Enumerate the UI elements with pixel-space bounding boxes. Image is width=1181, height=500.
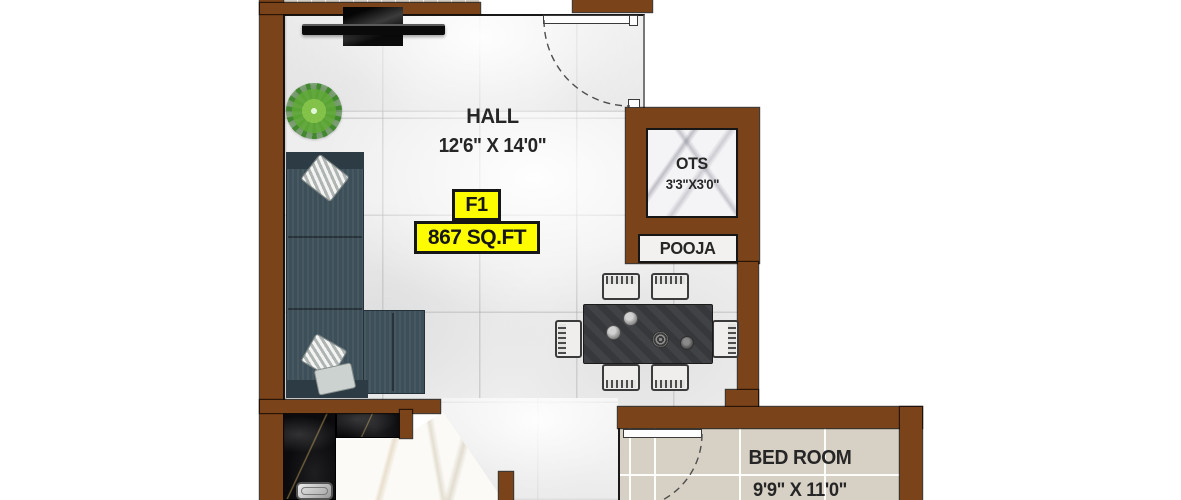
- bedroom-label: BED ROOM 9'9" X 11'0": [690, 446, 910, 500]
- main-door-stop: [628, 99, 640, 108]
- sofa-seam: [392, 313, 394, 391]
- pooja-room: POOJA: [638, 234, 738, 263]
- wall-mounted-tv: [302, 24, 445, 35]
- potted-plant: [286, 83, 342, 139]
- bedroom-door-panel: [623, 429, 702, 438]
- wall-top-stub: [573, 0, 652, 12]
- hall-label: HALL 12'6" X 14'0": [375, 104, 610, 158]
- table-centerpiece: [652, 331, 669, 348]
- main-door-panel: [543, 15, 631, 24]
- wall-kitchen-stub: [400, 410, 412, 438]
- pooja-room-name: POOJA: [660, 238, 716, 258]
- dining-chair: [602, 273, 640, 300]
- sofa-chaise: [363, 310, 425, 394]
- bedroom-room-dimensions: 9'9" X 11'0": [697, 479, 904, 500]
- dining-chair: [602, 364, 640, 391]
- hall-room-dimensions: 12'6" X 14'0": [382, 135, 603, 158]
- dining-chair: [712, 320, 739, 358]
- dining-table: [583, 304, 713, 364]
- wall-pillar: [499, 472, 513, 500]
- flat-number-badge: F1: [452, 189, 501, 221]
- ots-room-name: OTS: [676, 154, 708, 174]
- wall-bedroom-top: [618, 407, 922, 428]
- bedroom-room-name: BED ROOM: [697, 446, 904, 470]
- hall-room-name: HALL: [382, 104, 603, 129]
- sofa-seam: [288, 236, 362, 238]
- sofa-seam: [288, 308, 362, 310]
- wall-left: [260, 0, 283, 500]
- ots-room: OTS 3'3"X3'0": [646, 128, 738, 218]
- floor-plan-canvas: OTS 3'3"X3'0" POOJA HALL: [0, 0, 1181, 500]
- dining-chair: [555, 320, 582, 358]
- wall-hall-bottom: [260, 400, 440, 413]
- ots-room-dimensions: 3'3"X3'0": [665, 176, 718, 192]
- l-shaped-sofa: [286, 152, 426, 398]
- table-plate: [680, 336, 694, 350]
- dining-chair: [651, 273, 689, 300]
- main-door-hinge: [629, 15, 638, 26]
- table-plate: [606, 325, 621, 340]
- kitchen-sink: [296, 482, 333, 500]
- flat-area-badge: 867 SQ.FT: [414, 221, 540, 254]
- kitchen-counter-top: [336, 412, 402, 438]
- table-plate: [623, 311, 638, 326]
- dining-chair: [651, 364, 689, 391]
